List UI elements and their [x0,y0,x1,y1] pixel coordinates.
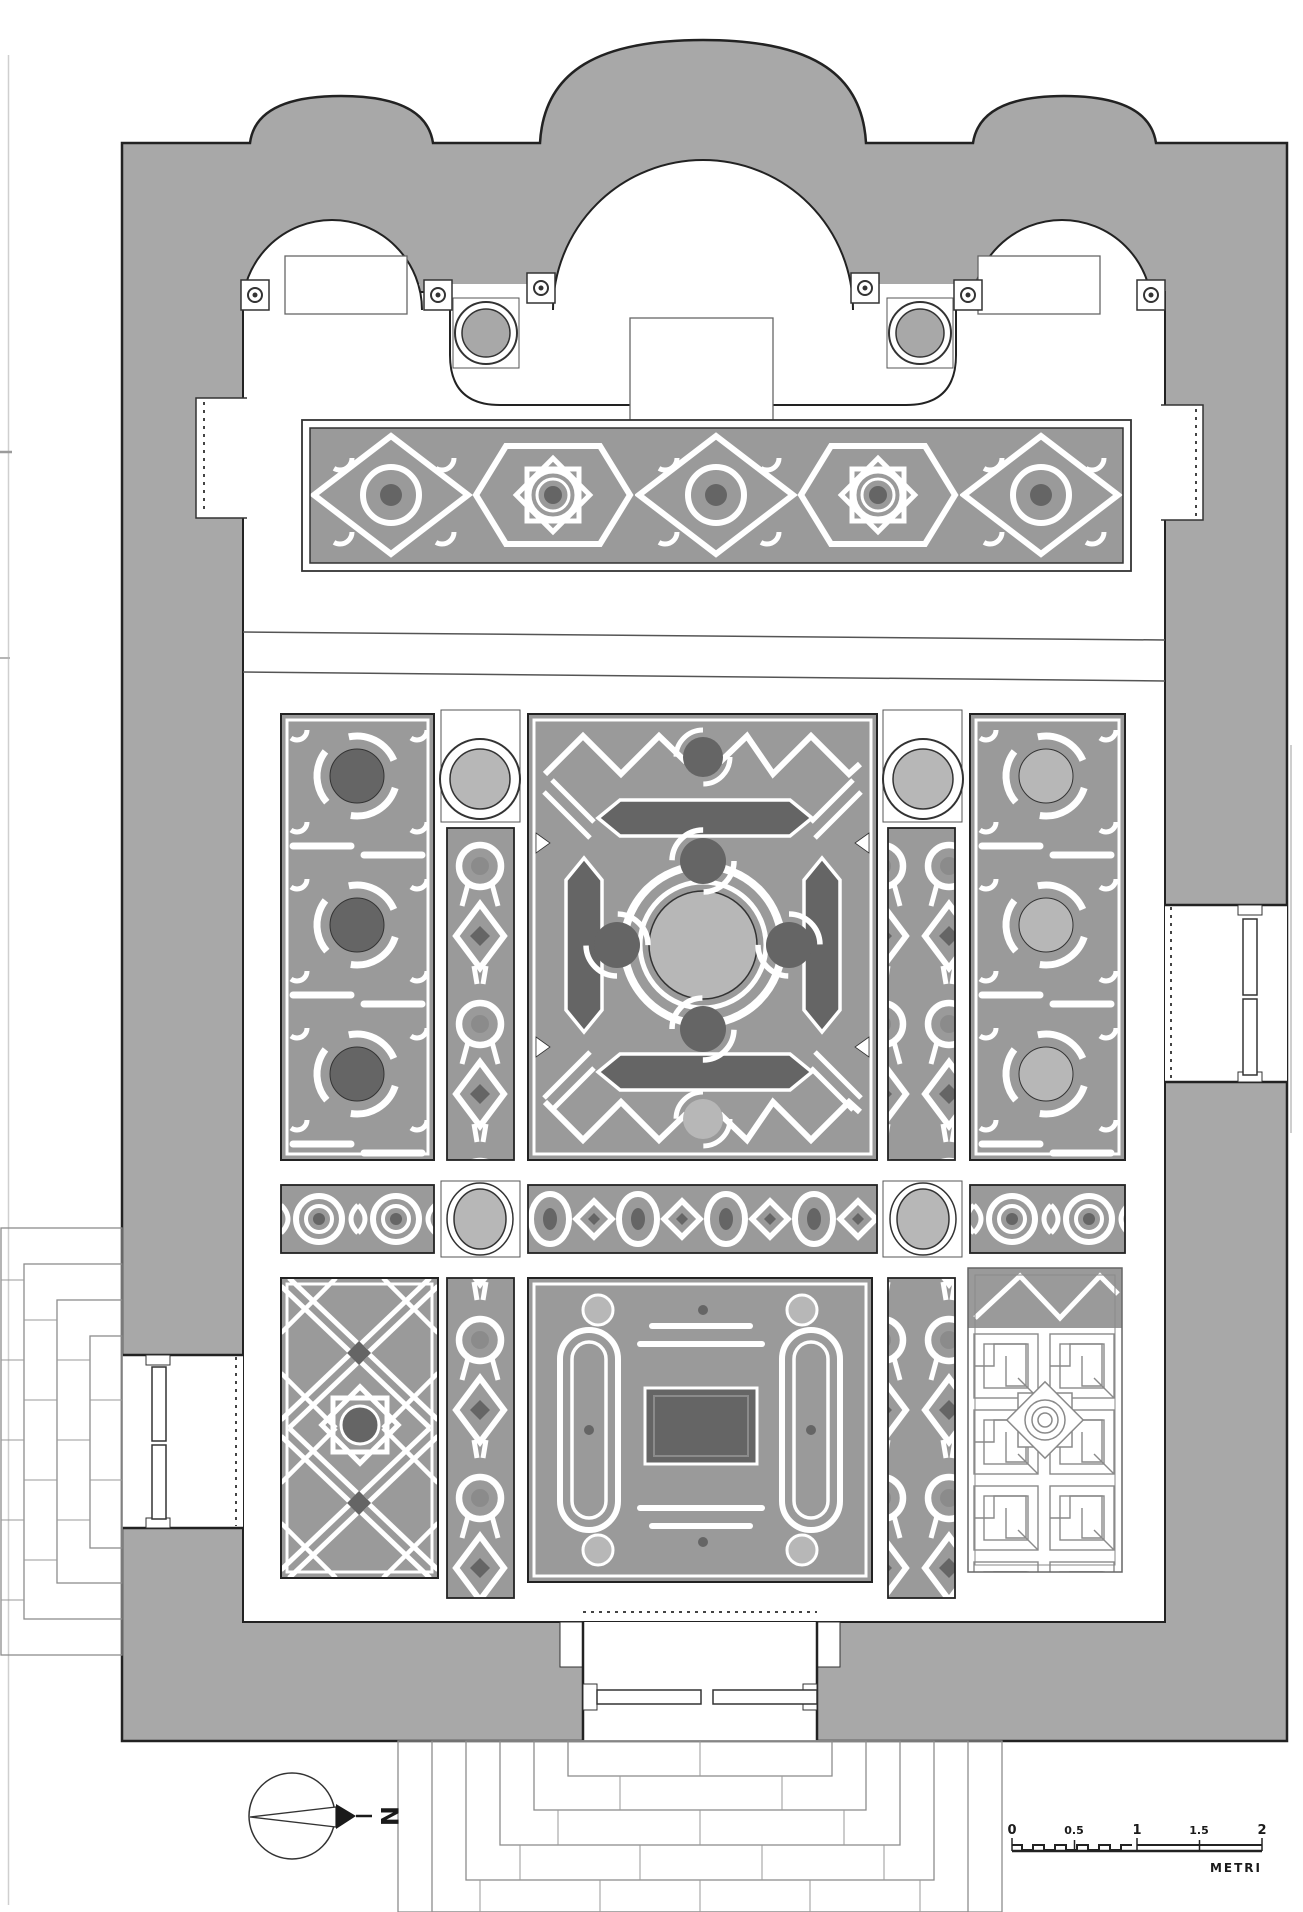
chain-band-upper-right [888,828,955,1160]
lower-right-panel [968,1268,1122,1572]
south-staircase [398,1741,1002,1912]
pier [954,280,982,310]
west-doorway [122,1355,243,1528]
scale-unit-label: METRI [1210,1861,1262,1875]
rota-band-left [441,1181,520,1257]
door-leaf [152,1445,166,1519]
pier [851,273,879,303]
scale-tick-label: 0.5 [1064,1824,1084,1837]
chain-band-upper-left [447,828,514,1160]
star-roundel [341,1406,379,1444]
scale-tick-label: 2 [1257,1823,1266,1838]
left-arch-column [453,298,519,368]
north-arrow-icon: N [249,1773,403,1859]
rota-upper-right [883,710,963,822]
lower-left-panel [281,1278,438,1578]
left-apse-altar [285,256,407,314]
north-label: N [375,1806,403,1826]
band-wave-central [528,1185,877,1253]
top-roundel [683,737,723,777]
pier [241,280,269,310]
pier [1137,280,1165,310]
band-rings-right [970,1185,1125,1253]
band-rings-left [281,1185,434,1253]
west-staircase [1,1228,122,1655]
step-joints [1,1280,122,1600]
central-rota [649,891,757,999]
hex-bar-top [598,800,812,836]
chain-band-lower-right [888,1278,955,1598]
door-leaf [597,1690,701,1704]
door-leaf [1243,999,1257,1075]
rota-band-right [883,1181,962,1257]
central-dark-slab [645,1388,757,1464]
right-apse-altar [978,256,1100,314]
sanctuary-frieze-panel [302,420,1131,571]
architectural-plan-page: N 0 0.5 1 1.5 2 METRI [0,0,1303,1912]
south-doorway [560,1622,840,1741]
floor-plan-drawing: N 0 0.5 1 1.5 2 METRI [0,0,1303,1912]
pier [527,273,555,303]
quincunx-panel [528,714,877,1160]
upper-right-panel [970,714,1125,1160]
scale-bar: 0 0.5 1 1.5 2 METRI [1007,1823,1266,1875]
door-leaf [152,1367,166,1441]
right-arch-column [887,298,953,368]
scale-tick-label: 1 [1132,1823,1141,1838]
door-leaf [1243,919,1257,995]
lower-central-panel [528,1278,872,1582]
bottom-roundel [683,1099,723,1139]
rota-upper-left [440,710,520,822]
right-wall-niche [1161,405,1203,520]
step-joints [480,1741,920,1912]
pier [424,280,452,310]
scale-bar-zigzag [1012,1845,1132,1850]
left-wall-niche [196,398,247,518]
door-leaf [713,1690,817,1704]
scale-tick-label: 1.5 [1189,1824,1209,1837]
east-doorway [1165,905,1287,1082]
scale-tick-label: 0 [1007,1823,1016,1838]
chain-band-lower-left [447,1278,514,1598]
upper-left-panel [281,714,434,1160]
